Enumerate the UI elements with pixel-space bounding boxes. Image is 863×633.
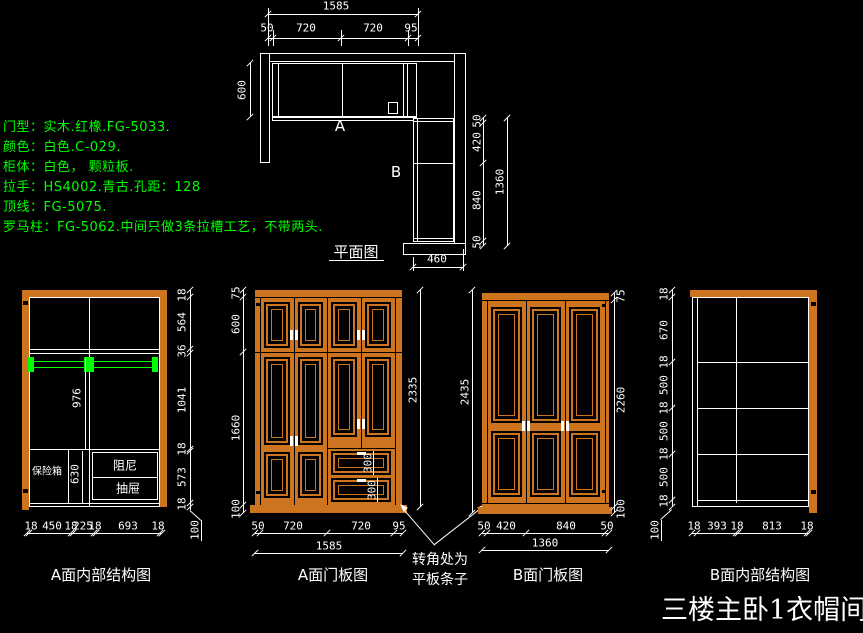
plan-a-divider xyxy=(278,63,279,117)
dim-line xyxy=(255,533,403,534)
plan-label-b: B xyxy=(391,163,401,181)
dim-label: 840 xyxy=(472,190,483,210)
door-panel xyxy=(365,357,391,437)
spec-text-block: 门型：实木.红橡.FG-5033. 颜色：白色.C-029. 柜体：白色， 颗粒… xyxy=(3,118,323,238)
dim-line xyxy=(190,290,191,510)
dim-label: 100 xyxy=(650,520,661,540)
door-panel xyxy=(298,302,323,348)
caption-b-internal: B面内部结构图 xyxy=(710,567,810,583)
dim-label: 1360 xyxy=(495,169,506,196)
dim-label: 1660 xyxy=(231,415,242,442)
caption-a-internal: A面内部结构图 xyxy=(51,567,151,583)
spec-line-color: 颜色：白色.C-029. xyxy=(3,138,323,158)
door-handle xyxy=(566,421,569,431)
door-handle xyxy=(527,421,530,431)
spec-line-door: 门型：实木.红橡.FG-5033. xyxy=(3,118,323,138)
a-internal-shelf xyxy=(29,449,160,450)
door-handle xyxy=(362,419,365,429)
b-internal-right-column xyxy=(809,297,817,513)
dim-label: 1360 xyxy=(532,538,559,549)
hanging-rod xyxy=(31,361,157,368)
dim-label: 100 xyxy=(190,520,201,540)
dim-label: 36 xyxy=(177,344,188,357)
b-internal-crown xyxy=(690,290,817,297)
dim-label: 573 xyxy=(177,467,188,487)
dim-label: 420 xyxy=(472,132,483,152)
dim-line xyxy=(482,550,609,551)
dim-label: 50 xyxy=(260,23,273,34)
plan-b-line xyxy=(417,118,418,242)
door-handle xyxy=(290,330,293,340)
dim-line xyxy=(255,553,403,554)
tick xyxy=(503,242,510,249)
dim-label: 300 xyxy=(363,453,374,473)
b-doors-plinth xyxy=(478,507,612,514)
hinge-mark xyxy=(23,489,28,493)
plan-wardrobe-b xyxy=(413,118,454,242)
door-gap xyxy=(255,297,402,298)
dim-label: 18 xyxy=(659,355,670,368)
dim-label: 460 xyxy=(427,254,447,265)
door-panel xyxy=(298,357,323,445)
door-gap xyxy=(395,297,396,505)
dim-label: 2435 xyxy=(460,379,471,406)
dim-line xyxy=(243,290,244,513)
dim-label: 1585 xyxy=(316,541,343,552)
dim-label: 50 xyxy=(251,521,264,532)
hinge-mark xyxy=(602,304,606,307)
dim-label: 720 xyxy=(363,23,383,34)
door-gap xyxy=(482,300,609,301)
safe-label: 保险箱 xyxy=(32,463,62,478)
door-panel xyxy=(331,302,357,348)
a-doors-plinth xyxy=(250,505,407,513)
dim-label: 100 xyxy=(231,499,242,519)
dim-line xyxy=(413,267,463,268)
dim-label: 720 xyxy=(296,23,316,34)
plan-a-divider xyxy=(342,63,343,117)
dim-label: 18 xyxy=(177,497,188,510)
b-internal-shelf xyxy=(697,408,809,409)
hinge-mark xyxy=(811,490,816,494)
dim-line xyxy=(420,290,421,507)
door-panel xyxy=(530,431,561,497)
door-gap xyxy=(327,297,328,505)
door-gap xyxy=(605,300,606,503)
plan-b-divider xyxy=(413,163,454,164)
dim-label: 18 xyxy=(151,521,164,532)
plan-wall-right xyxy=(454,53,466,247)
hinge-mark xyxy=(23,301,28,305)
dim-label: 18 xyxy=(659,287,670,300)
door-panel xyxy=(331,357,357,437)
door-handle xyxy=(290,436,293,446)
dim-label: 18 xyxy=(659,447,670,460)
tick xyxy=(399,549,406,556)
a-internal-bottom xyxy=(29,503,160,504)
door-handle xyxy=(561,421,564,431)
plan-a-divider xyxy=(407,63,408,117)
door-panel xyxy=(491,431,522,497)
door-handle xyxy=(357,330,360,340)
dim-label: 100 xyxy=(616,499,627,519)
dim-label: 18 xyxy=(800,521,813,532)
dim-label: 95 xyxy=(404,23,417,34)
b-internal-divider xyxy=(736,297,737,503)
dim-label: 693 xyxy=(118,521,138,532)
door-panel xyxy=(365,302,391,348)
rod-bracket xyxy=(152,357,158,372)
b-internal-shelf xyxy=(697,500,809,501)
dim-line xyxy=(250,63,251,117)
dim-label: 18 xyxy=(687,521,700,532)
plan-label-a: A xyxy=(335,117,345,135)
dim-label: 50 xyxy=(600,521,613,532)
cad-drawing-canvas: 门型：实木.红橡.FG-5033. 颜色：白色.C-029. 柜体：白色， 颗粒… xyxy=(0,0,863,633)
dim-line xyxy=(268,14,418,15)
door-panel xyxy=(569,431,600,497)
dim-label: 50 xyxy=(472,114,483,127)
dim-label: 393 xyxy=(707,521,727,532)
dim-label: 18 xyxy=(730,521,743,532)
door-panel xyxy=(264,452,290,498)
a-internal-crown xyxy=(22,290,167,297)
a-internal-left-column xyxy=(22,297,29,510)
spec-line-body: 柜体：白色， 颗粒板. xyxy=(3,158,323,178)
door-gap xyxy=(487,300,488,503)
leader-line xyxy=(660,509,672,520)
extension-line xyxy=(463,249,464,271)
dim-label: 50 xyxy=(477,521,490,532)
corner-note-line1: 转角处为 xyxy=(412,549,468,569)
dim-label: 95 xyxy=(392,521,405,532)
dim-label: 18 xyxy=(659,494,670,507)
leader-line xyxy=(434,507,482,545)
a-internal-drawer-divider xyxy=(92,477,158,478)
tick xyxy=(605,546,612,553)
tick xyxy=(416,503,423,510)
hinge-mark xyxy=(256,303,260,306)
door-panel xyxy=(298,452,323,498)
dim-line xyxy=(692,533,809,534)
a-internal-shelf xyxy=(29,353,160,354)
dim-label: 2335 xyxy=(408,377,419,404)
door-handle xyxy=(357,419,360,429)
door-handle xyxy=(295,436,298,446)
spec-line-handle: 拉手：HS4002.青古.孔距：128 xyxy=(3,178,323,198)
door-gap xyxy=(526,300,527,503)
plan-a-divider xyxy=(403,63,404,117)
dim-label: 670 xyxy=(659,320,670,340)
dim-label: 300 xyxy=(367,480,378,500)
dim-label: 18 xyxy=(24,521,37,532)
dim-label: 630 xyxy=(70,464,81,484)
dim-label: 2260 xyxy=(616,387,627,414)
dim-label: 840 xyxy=(556,521,576,532)
corner-note-line2: 平板条子 xyxy=(412,569,468,589)
door-handle xyxy=(362,330,365,340)
dim-line xyxy=(507,118,508,246)
dim-label: 18 xyxy=(177,288,188,301)
plan-b-line xyxy=(413,121,454,122)
a-internal-divider xyxy=(89,297,90,507)
door-panel xyxy=(491,307,522,423)
dim-line xyxy=(268,38,418,39)
b-internal-shelf xyxy=(697,362,809,363)
dim-line xyxy=(482,533,609,534)
caption-plan: 平面图 xyxy=(333,244,378,260)
door-panel xyxy=(569,307,600,423)
dim-label: 600 xyxy=(231,314,242,334)
door-handle xyxy=(295,330,298,340)
door-handle xyxy=(522,421,525,431)
dim-label: 18 xyxy=(177,442,188,455)
door-panel xyxy=(264,357,290,445)
door-gap xyxy=(327,448,395,449)
hinge-mark xyxy=(256,491,260,494)
spec-line-column: 罗马柱：FG-5062.中间只做3条拉槽工艺，不带两头. xyxy=(3,218,323,238)
drawing-title: 三楼主卧1衣帽间 xyxy=(661,596,863,626)
b-internal-shelf xyxy=(697,454,809,455)
plan-column-block xyxy=(388,102,398,114)
b-internal-carcass xyxy=(692,297,809,507)
dim-label: 50 xyxy=(472,235,483,248)
door-panel xyxy=(264,302,290,348)
dim-label: 18 xyxy=(659,401,670,414)
door-gap xyxy=(482,503,609,504)
drawer-label: 抽屉 xyxy=(116,480,140,497)
dim-label: 450 xyxy=(42,521,62,532)
dim-label: 720 xyxy=(351,521,371,532)
caption-b-doors: B面门板图 xyxy=(513,567,583,583)
dim-label: 720 xyxy=(283,521,303,532)
a-internal-shelf xyxy=(29,349,160,350)
door-gap xyxy=(294,297,295,505)
dim-label: 1585 xyxy=(323,1,350,12)
drawer-label: 阻尼 xyxy=(113,457,137,474)
rod-bracket xyxy=(28,357,34,372)
dim-label: 420 xyxy=(496,521,516,532)
caption-underline xyxy=(329,260,384,261)
dim-label: 500 xyxy=(659,375,670,395)
a-internal-right-column xyxy=(160,297,167,507)
dim-label: 1041 xyxy=(177,387,188,414)
dim-label: 976 xyxy=(72,388,83,408)
dim-label: 500 xyxy=(659,421,670,441)
dim-label: 600 xyxy=(237,80,248,100)
caption-a-doors: A面门板图 xyxy=(298,567,368,583)
plan-wall-left xyxy=(260,53,270,163)
door-gap xyxy=(565,300,566,503)
dim-line xyxy=(472,290,473,513)
dim-label: 564 xyxy=(177,312,188,332)
plan-wall-top xyxy=(260,53,466,62)
dim-label: 75 xyxy=(231,286,242,299)
b-internal-side-panel xyxy=(697,297,698,507)
dim-label: 75 xyxy=(616,289,627,302)
dim-line xyxy=(85,359,86,449)
door-gap xyxy=(255,352,402,353)
dim-line xyxy=(82,451,83,503)
dim-label: 813 xyxy=(762,521,782,532)
door-panel xyxy=(530,307,561,423)
leader-line xyxy=(402,508,435,546)
dim-label: 18 xyxy=(88,521,101,532)
plan-b-line xyxy=(413,238,454,239)
dim-line xyxy=(672,290,673,507)
hinge-mark xyxy=(811,302,816,306)
hinge-mark xyxy=(602,490,606,493)
dim-label: 500 xyxy=(659,467,670,487)
door-gap xyxy=(260,297,261,505)
spec-line-crown: 顶线：FG-5075. xyxy=(3,198,323,218)
